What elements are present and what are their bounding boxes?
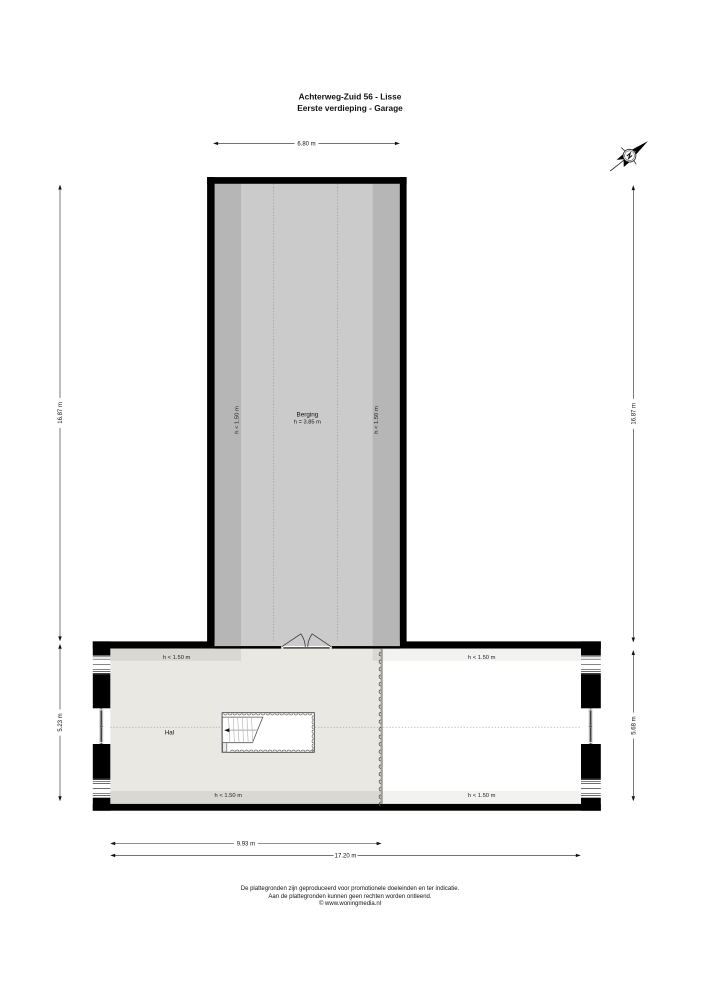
svg-text:17.20 m: 17.20 m [335, 854, 357, 860]
svg-text:Achterweg-Zuid 56 - Lisse: Achterweg-Zuid 56 - Lisse [299, 92, 402, 102]
svg-text:Berging: Berging [297, 412, 319, 419]
svg-text:Eerste verdieping - Garage: Eerste verdieping - Garage [297, 103, 403, 113]
svg-text:h < 1.50 m: h < 1.50 m [468, 655, 496, 661]
svg-text:De plattegronden zijn geproduc: De plattegronden zijn geproduceerd voor … [241, 886, 460, 892]
svg-text:16.87 m: 16.87 m [631, 403, 637, 425]
svg-text:h < 1.50 m: h < 1.50 m [374, 406, 380, 434]
svg-text:h < 1.50 m: h < 1.50 m [163, 655, 191, 661]
svg-text:5.23 m: 5.23 m [58, 713, 64, 731]
svg-text:h < 1.50 m: h < 1.50 m [234, 406, 240, 434]
svg-text:h = 3.85 m: h = 3.85 m [294, 420, 321, 426]
svg-text:16.87 m: 16.87 m [58, 402, 64, 424]
svg-text:Aan de plattegronden kunnen ge: Aan de plattegronden kunnen geen rechten… [268, 894, 431, 900]
svg-text:h < 1.50 m: h < 1.50 m [468, 793, 496, 799]
svg-text:5.68 m: 5.68 m [631, 716, 637, 734]
svg-text:© www.woningmedia.nl: © www.woningmedia.nl [319, 900, 381, 907]
svg-text:9.93 m: 9.93 m [237, 842, 255, 848]
svg-text:h < 1.50 m: h < 1.50 m [215, 793, 243, 799]
svg-text:6.80 m: 6.80 m [297, 142, 315, 148]
svg-text:Hal: Hal [165, 729, 174, 736]
